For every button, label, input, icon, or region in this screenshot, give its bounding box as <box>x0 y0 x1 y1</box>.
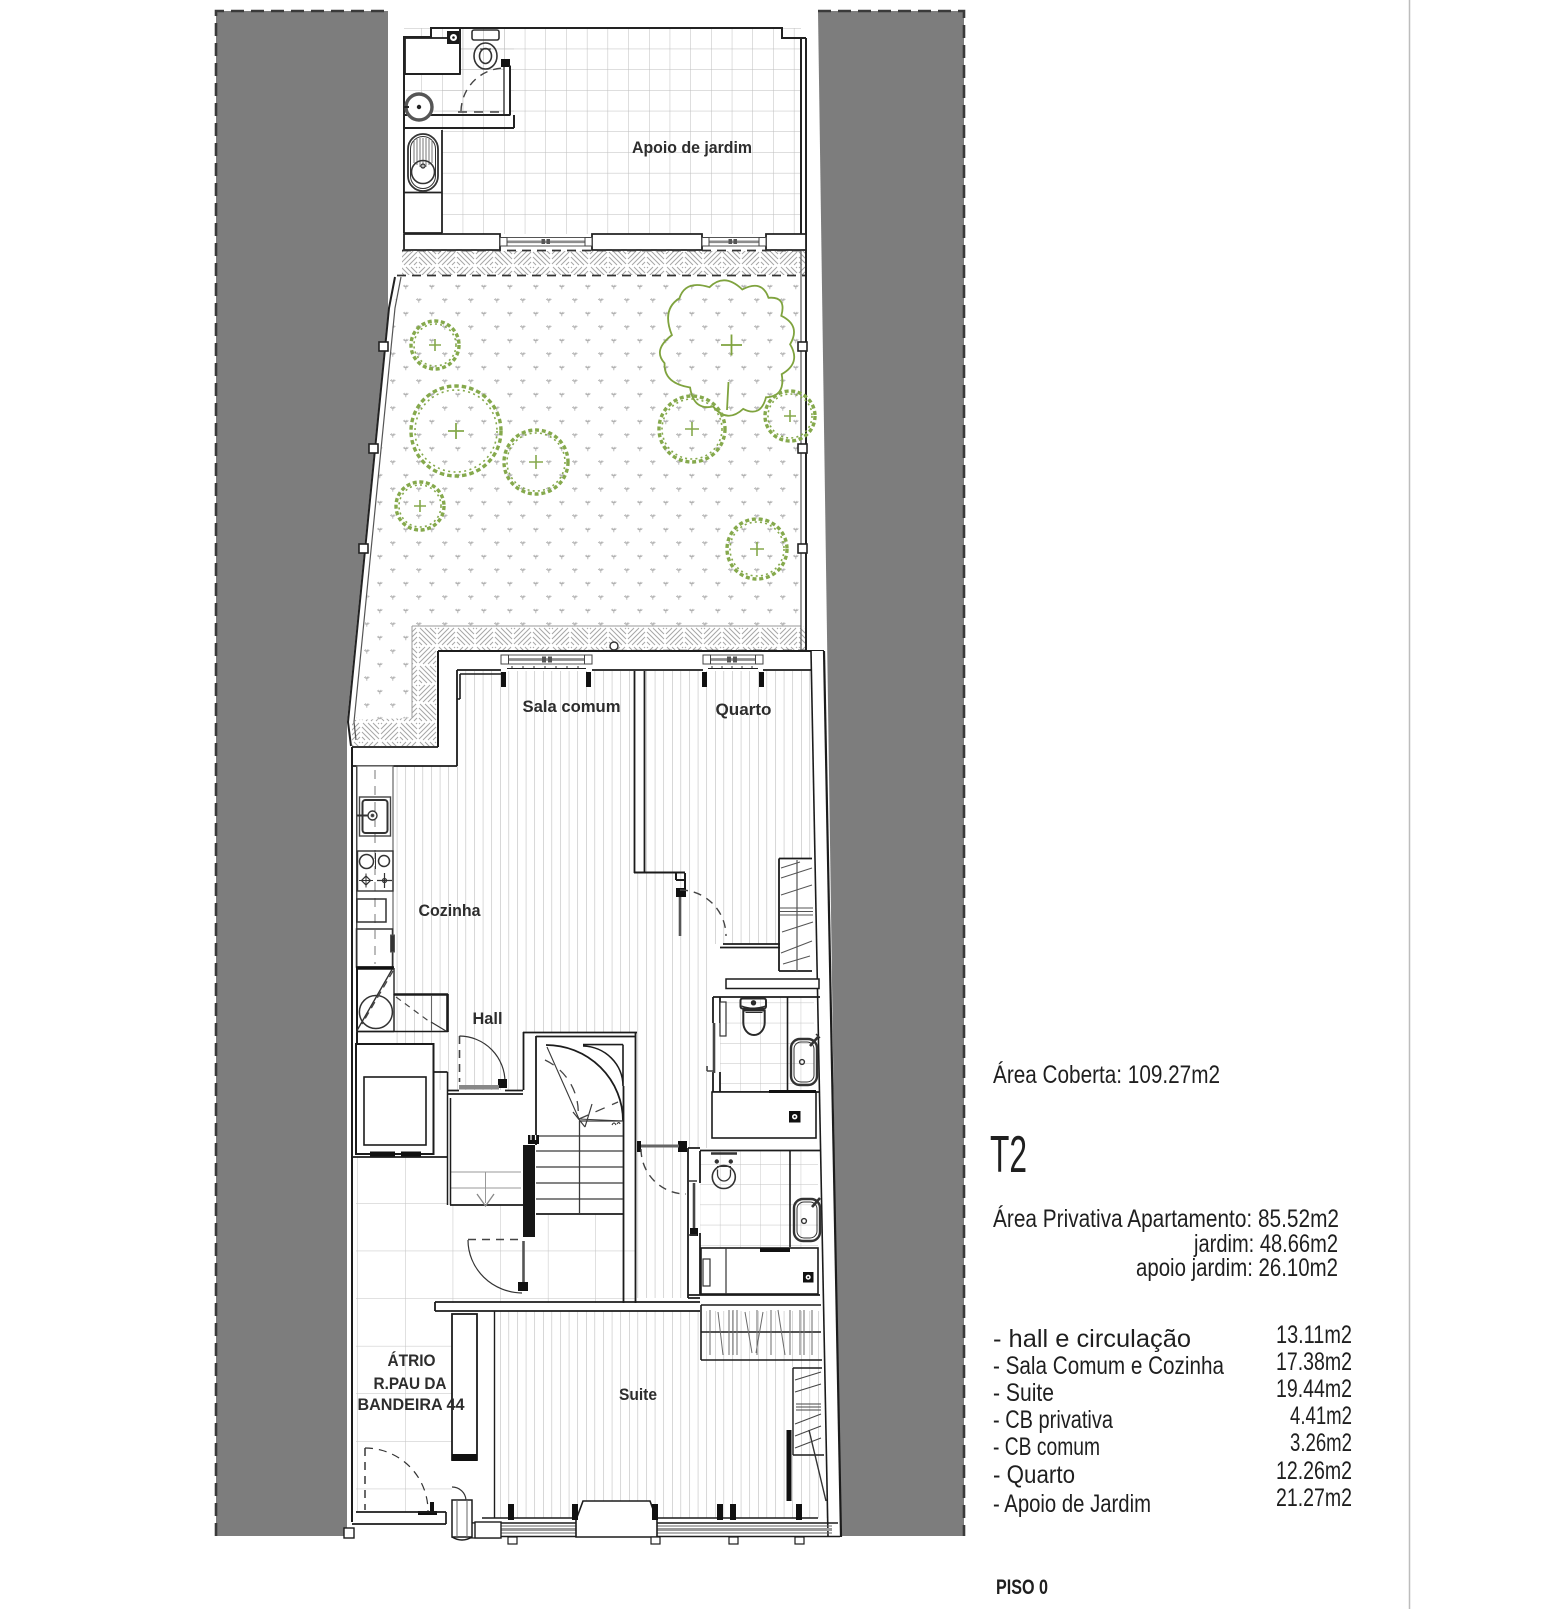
svg-text:- hall e circulação: - hall e circulação <box>993 1325 1191 1353</box>
svg-text:ÁTRIO: ÁTRIO <box>388 1351 436 1370</box>
svg-text:13.11m2: 13.11m2 <box>1276 1321 1352 1349</box>
svg-text:- Apoio de Jardim: - Apoio de Jardim <box>993 1490 1151 1518</box>
svg-text:21.27m2: 21.27m2 <box>1276 1484 1352 1512</box>
svg-text:PISO 0: PISO 0 <box>996 1576 1048 1599</box>
svg-text:Cozinha: Cozinha <box>419 901 482 920</box>
svg-text:Quarto: Quarto <box>716 700 772 719</box>
svg-text:Suite: Suite <box>619 1385 657 1404</box>
svg-text:Sala comum: Sala comum <box>523 697 621 716</box>
svg-text:R.PAU DA: R.PAU DA <box>374 1374 447 1393</box>
svg-text:apoio jardim: 26.10m2: apoio jardim: 26.10m2 <box>1136 1254 1338 1282</box>
svg-text:3.26m2: 3.26m2 <box>1290 1429 1352 1457</box>
svg-text:Área Coberta: 109.27m2: Área Coberta: 109.27m2 <box>993 1060 1220 1089</box>
svg-text:T2: T2 <box>990 1126 1027 1184</box>
svg-text:- Sala Comum e Cozinha: - Sala Comum e Cozinha <box>993 1352 1224 1380</box>
svg-text:Apoio de jardim: Apoio de jardim <box>632 138 752 157</box>
svg-text:4.41m2: 4.41m2 <box>1290 1402 1352 1430</box>
svg-text:- CB privativa: - CB privativa <box>993 1406 1113 1434</box>
svg-text:19.44m2: 19.44m2 <box>1276 1375 1352 1403</box>
svg-text:- Quarto: - Quarto <box>993 1461 1075 1489</box>
svg-text:17.38m2: 17.38m2 <box>1276 1348 1352 1376</box>
svg-text:Área Privativa Apartamento: 85: Área Privativa Apartamento: 85.52m2 <box>993 1204 1339 1233</box>
svg-text:12.26m2: 12.26m2 <box>1276 1457 1352 1485</box>
svg-text:- Suite: - Suite <box>993 1379 1054 1407</box>
svg-text:Hall: Hall <box>473 1009 503 1028</box>
svg-text:- CB comum: - CB comum <box>993 1433 1100 1461</box>
svg-text:BANDEIRA 44: BANDEIRA 44 <box>358 1395 466 1414</box>
